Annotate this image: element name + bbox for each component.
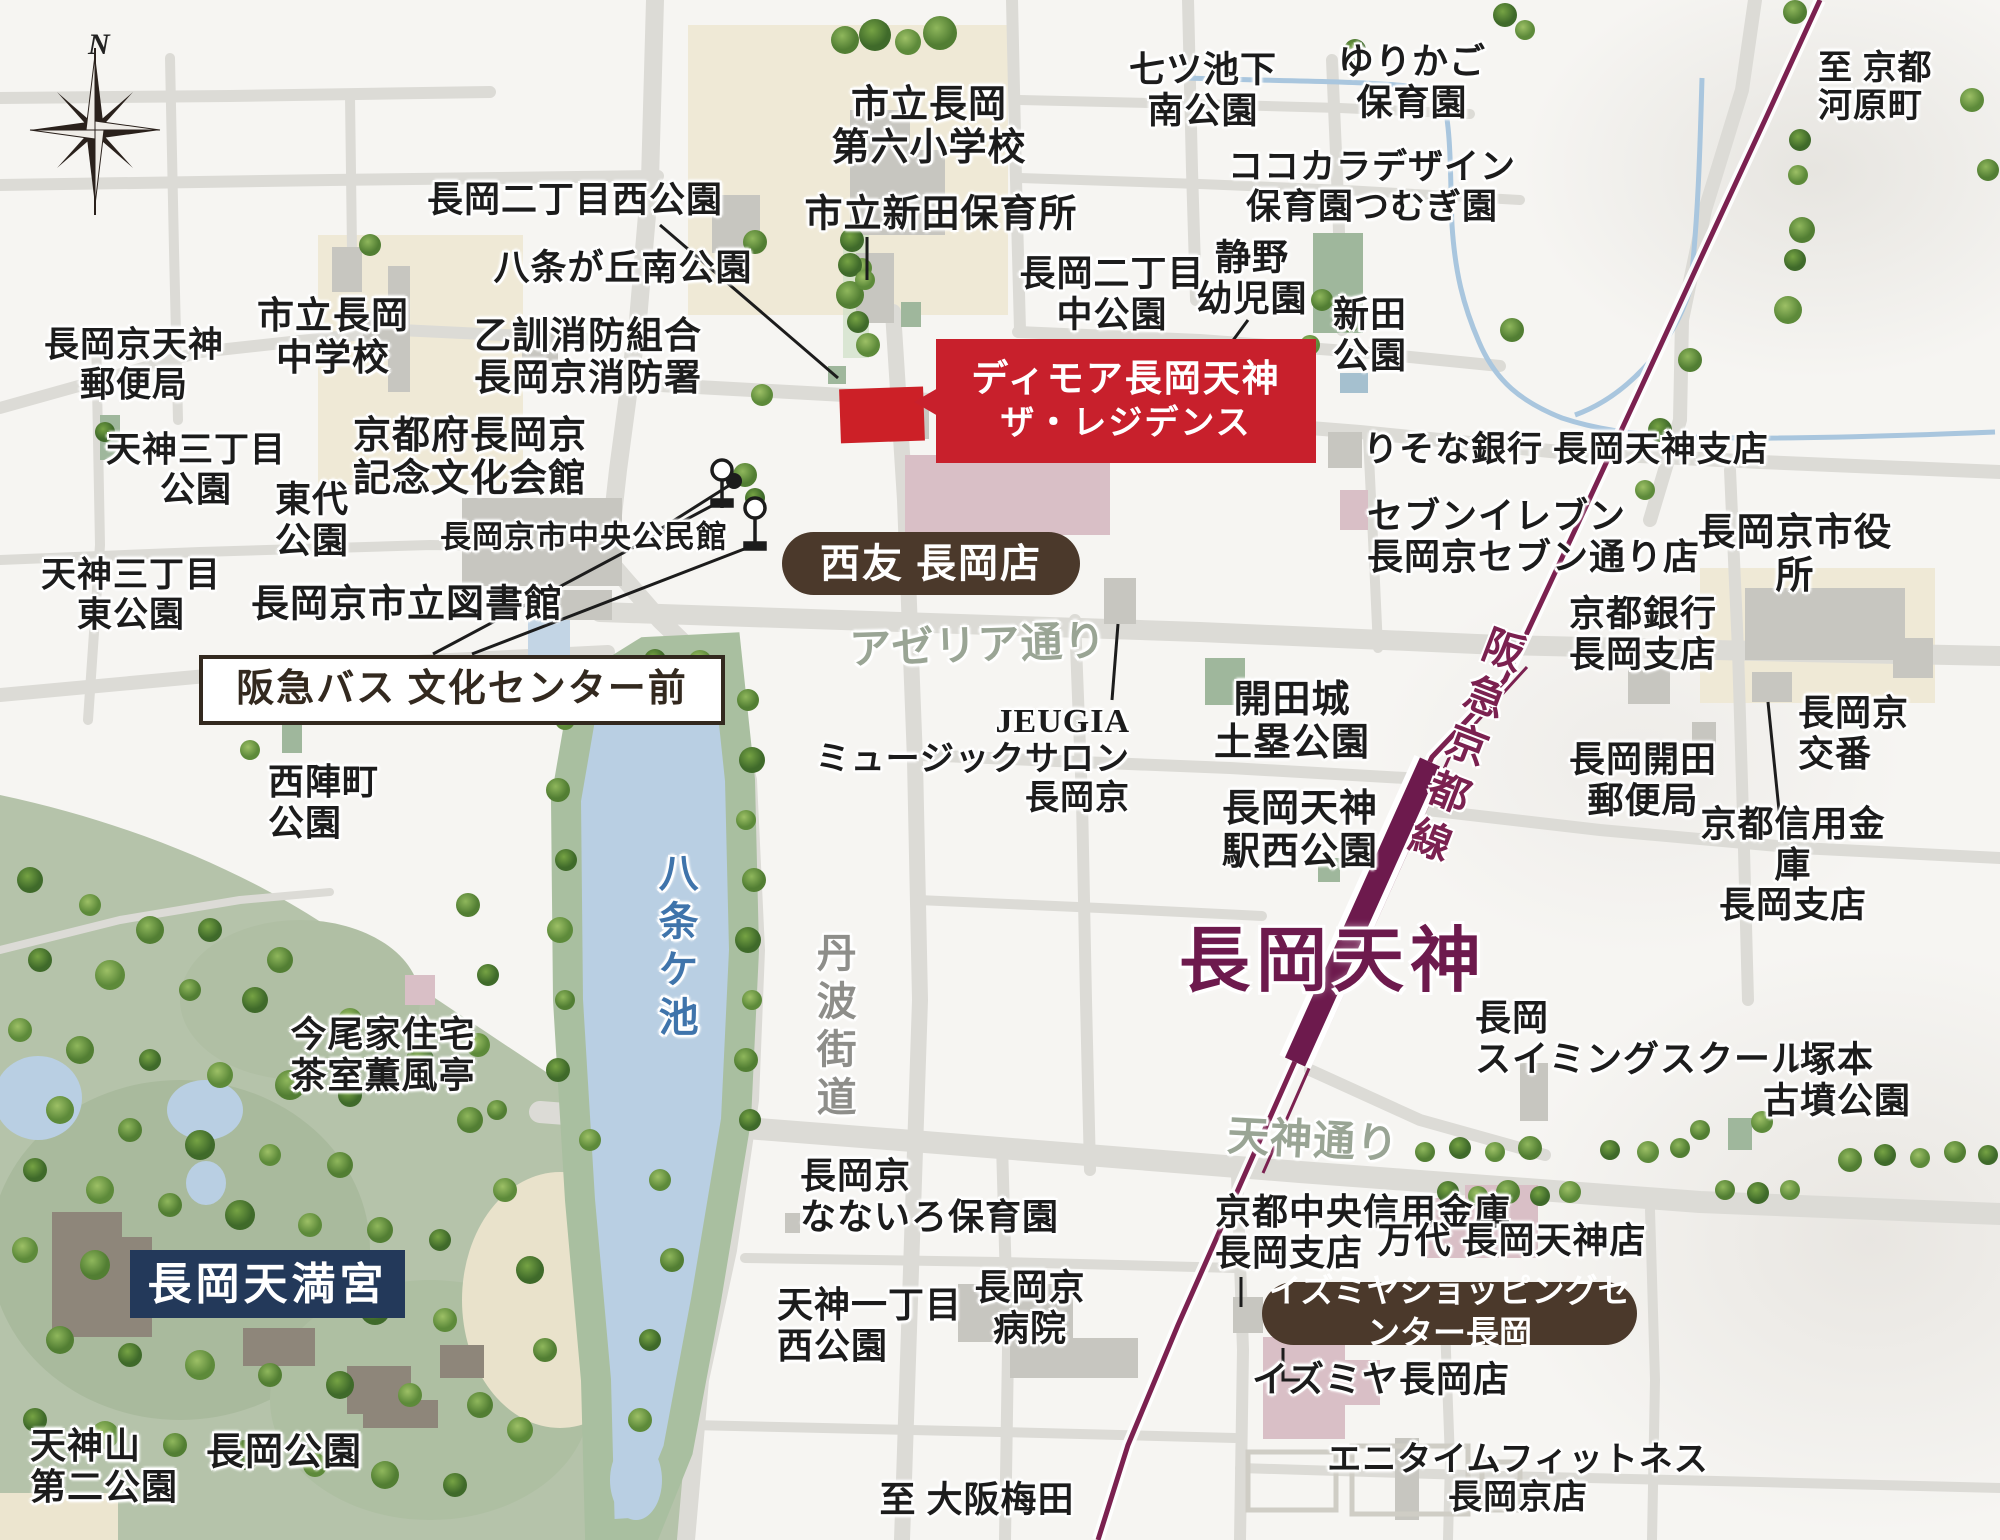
label-kaidenjo-park: 開田城 土塁公園 (1214, 679, 1370, 765)
label-tsukamoto-kofun: 塚本 古墳公園 (1763, 1039, 1911, 1120)
label-nanairo-nursery: 長岡京 なないろ保育園 (800, 1156, 1059, 1237)
label-todai-park: 東代 公園 (275, 479, 349, 560)
label-city-library: 長岡京市立図書館 (251, 584, 563, 627)
label-nagaoka-park: 長岡公園 (206, 1432, 362, 1475)
label-tenjin3-park: 天神三丁目 公園 (106, 430, 286, 509)
property-name-line2: ザ・レジデンス (971, 403, 1280, 446)
label-shizuno-kindergarten: 静野 幼児園 (1196, 237, 1307, 318)
compass-rose (30, 48, 160, 215)
label-nagaoka2-west-park: 長岡二丁目西公園 (427, 180, 723, 221)
label-tenjin1-west-park: 天神一丁目 西公園 (777, 1285, 962, 1366)
izumiya-sc-callout: イズミヤショッピングセンター長岡 (1262, 1282, 1637, 1345)
bus-stop-icon-2 (745, 498, 765, 550)
label-hospital: 長岡京 病院 (974, 1267, 1085, 1348)
seiyu-store-callout: 西友 長岡店 (782, 532, 1080, 595)
label-anytime-fitness: エニタイムフィットネス 長岡京店 (1327, 1442, 1709, 1519)
label-kyoto-shinyo: 京都信用金庫 長岡支店 (1690, 804, 1897, 926)
compass-north-letter: N (88, 28, 110, 62)
property-callout: ディモア長岡天神 ザ・レジデンス (936, 339, 1316, 463)
label-chuo-kominkan: 長岡京市中央公民館 (440, 519, 728, 554)
label-post-office-tenjin: 長岡京天神 郵便局 (44, 325, 224, 404)
label-nanatsuike-park: 七ツ池下 南公園 (1129, 49, 1277, 130)
station-name-nagaoka-tenjin: 長岡天神 (1168, 904, 1498, 1006)
label-to-kyoto-kawaramachi: 至 京都 河原町 (1818, 50, 1933, 127)
label-yurikago-nursery: ゆりかご 保育園 (1338, 41, 1486, 122)
label-hachijo-south-park: 八条が丘南公園 (493, 248, 752, 289)
label-elementary-school: 市立長岡 第六小学校 (831, 84, 1026, 170)
property-name-line1: ディモア長岡天神 (971, 357, 1280, 403)
label-koban: 長岡京 交番 (1798, 693, 1909, 774)
label-municipal-jhs: 市立長岡 中学校 (257, 296, 409, 380)
label-imao-house: 今尾家住宅 茶室薫風亭 (290, 1014, 475, 1095)
map-canvas: 長岡京天神 郵便局天神三丁目 公園天神三丁目 東公園市立長岡 中学校長岡二丁目西… (0, 0, 2000, 1540)
label-ekinishi-park: 長岡天神 駅西公園 (1222, 788, 1378, 874)
property-callout-pointer (914, 388, 938, 416)
label-kyoto-bank: 京都銀行 長岡支店 (1569, 593, 1717, 674)
label-otokuni-fire-station: 乙訓消防組合 長岡京消防署 (474, 316, 702, 400)
label-jeugia: JEUGIA ミュージックサロン 長岡京 (816, 703, 1130, 818)
label-swimming-school: 長岡 スイミングスクール (1475, 998, 1808, 1079)
label-izumiya-store: イズミヤ長岡店 (1252, 1360, 1510, 1401)
label-shinden-park: 新田 公園 (1333, 294, 1407, 375)
label-seven-eleven: セブンイレブン 長岡京セブン通り店 (1367, 496, 1700, 577)
label-to-osaka-umeda: 至 大阪梅田 (879, 1480, 1074, 1521)
label-city-hall: 長岡京市役所 (1693, 512, 1898, 598)
tenmangu-callout: 長岡天満宮 (130, 1250, 405, 1318)
label-nishijin-park: 西陣町 公園 (268, 762, 379, 843)
label-tenjin-dori: 天神通り (1226, 1114, 1400, 1170)
label-azeria-dori: アゼリア通り (849, 619, 1108, 675)
label-tanba-kaido: 丹波街道 (810, 932, 855, 1124)
label-shinden-nursery: 市立新田保育所 (804, 194, 1077, 237)
label-tenjin3-east-park: 天神三丁目 東公園 (41, 555, 221, 634)
label-nagaoka2-naka-park: 長岡二丁目 中公園 (1019, 253, 1204, 334)
label-tenjinyama-park: 天神山 第二公園 (30, 1426, 178, 1507)
label-hachijogaike: 八条ケ池 (652, 852, 697, 1044)
label-risona-bank: りそな銀行 長岡天神支店 (1363, 430, 1769, 470)
bus-stop-callout: 阪急バス 文化センター前 (199, 655, 725, 725)
label-bunka-kaikan: 京都府長岡京 記念文化会館 (353, 415, 587, 501)
label-kokokara-nursery: ココカラデザイン 保育園つむぎ園 (1228, 147, 1516, 226)
label-mandai: 万代 長岡天神店 (1377, 1221, 1646, 1262)
